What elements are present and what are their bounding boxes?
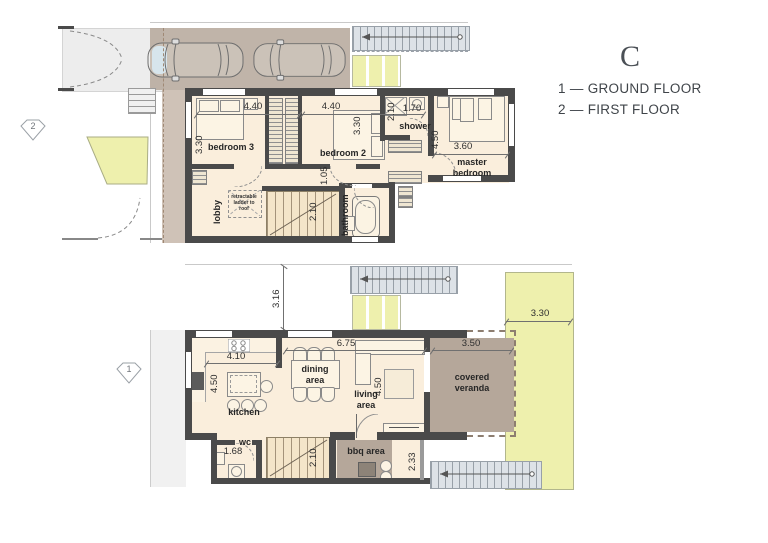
site-boundary-line xyxy=(185,264,572,265)
car-icon xyxy=(252,37,348,83)
stair-direction-arrow xyxy=(352,26,468,49)
room-label-dining: dining area xyxy=(296,364,334,386)
fence-line xyxy=(62,238,98,240)
kitchen-island-top xyxy=(230,375,257,393)
door-arc xyxy=(330,166,356,186)
ground-floor-marker: 1 xyxy=(115,364,143,374)
pillow xyxy=(199,100,219,112)
stair-break-line xyxy=(266,191,339,237)
low-wall xyxy=(420,440,424,480)
dim-wc-width: 1.68 xyxy=(221,446,245,457)
pedestrian-gate-icon xyxy=(97,196,142,240)
wall xyxy=(330,432,355,440)
roof-overhang-line xyxy=(352,51,468,52)
side-path xyxy=(150,330,186,487)
wall xyxy=(262,186,339,191)
wardrobe xyxy=(268,98,283,164)
wall xyxy=(389,182,395,243)
window xyxy=(288,331,332,337)
window xyxy=(448,89,494,95)
dim-side-setback: 3.16 xyxy=(271,285,282,313)
dim-shower-width: 1.70 xyxy=(400,103,424,114)
dim-veranda-width: 3.50 xyxy=(458,338,484,349)
toilet-bowl xyxy=(231,466,242,477)
room-label-bathroom: bathroom xyxy=(340,194,351,236)
dim-kitchen-width: 4.10 xyxy=(224,351,248,362)
room-label-living: living area xyxy=(346,389,386,411)
window xyxy=(352,237,378,242)
dim-dining-width: 6.75 xyxy=(333,338,359,349)
garden-patch xyxy=(85,135,151,187)
wall xyxy=(329,437,336,480)
wall xyxy=(256,440,262,480)
dim-bedroom3-width: 4.40 xyxy=(240,101,266,112)
car-icon xyxy=(146,37,246,83)
dim-gf-stairs-width: 2.10 xyxy=(308,445,319,471)
wall xyxy=(265,164,302,169)
dim-bedroom3-depth: 3.30 xyxy=(194,132,205,158)
tv-icon xyxy=(383,423,425,432)
room-label-master-bedroom: master bedroom xyxy=(450,157,494,179)
wardrobe xyxy=(388,140,422,153)
rug xyxy=(384,369,414,399)
window xyxy=(186,102,191,138)
window xyxy=(509,104,514,146)
room-label-bbq: bbq area xyxy=(344,446,388,457)
floor-plan-sheet: C 1 — GROUND FLOOR 2 — FIRST FLOOR xyxy=(0,0,768,543)
door-arc xyxy=(354,188,374,208)
legend-ground-floor: 1 — GROUND FLOOR xyxy=(558,81,702,96)
planter-strip xyxy=(352,295,401,330)
wall xyxy=(192,164,234,169)
site-boundary-line xyxy=(150,22,468,23)
fence-line xyxy=(140,238,162,240)
sofa xyxy=(355,353,371,385)
door-arc xyxy=(234,166,262,187)
wall xyxy=(211,440,235,445)
veranda-dashed-edge xyxy=(467,330,516,332)
plan-title: C xyxy=(612,40,648,74)
wall xyxy=(424,392,430,432)
pillow xyxy=(478,98,492,120)
legend-first-floor: 2 — FIRST FLOOR xyxy=(558,102,680,117)
ac-unit xyxy=(398,186,413,197)
dim-bedroom2-depth: 3.30 xyxy=(352,112,363,140)
stair-direction-arrow xyxy=(430,461,540,487)
entry-steps xyxy=(128,88,156,114)
dim-ff-stairs-width: 2.10 xyxy=(308,199,319,225)
ac-unit xyxy=(398,197,413,208)
wall xyxy=(185,433,217,440)
room-label-bedroom3: bedroom 3 xyxy=(205,142,257,153)
stool xyxy=(260,380,273,393)
veranda-dashed-edge xyxy=(467,435,516,437)
ladder-note: retractable ladder to roof xyxy=(230,194,258,212)
chair xyxy=(293,387,307,402)
window xyxy=(335,89,377,95)
bbq-grill xyxy=(358,462,376,477)
veranda-dashed-edge xyxy=(514,330,516,437)
pillow xyxy=(220,100,240,112)
dim-master-width: 3.60 xyxy=(450,141,476,152)
room-label-bedroom2: bedroom 2 xyxy=(318,148,368,159)
wall xyxy=(420,432,467,440)
chair xyxy=(321,387,335,402)
wall xyxy=(211,478,430,484)
pillow xyxy=(460,98,474,122)
fridge xyxy=(192,372,204,390)
dim-garden-width: 3.30 xyxy=(527,308,553,319)
room-label-shower: shower xyxy=(396,121,434,132)
stair-break-line xyxy=(266,437,330,478)
nightstand xyxy=(437,96,449,108)
driveway-gate-icon xyxy=(64,28,126,90)
dim-bedroom2-width: 4.40 xyxy=(318,101,344,112)
property-dashed-line xyxy=(163,28,164,243)
chair xyxy=(307,387,321,402)
window xyxy=(186,352,191,388)
closet xyxy=(192,170,207,185)
window xyxy=(196,331,232,337)
wall xyxy=(380,135,410,140)
dim-right-setback: 2.33 xyxy=(407,449,418,475)
planter-strip xyxy=(352,55,401,87)
wall xyxy=(356,164,380,169)
dim-kitchen-depth: 4.50 xyxy=(209,371,220,397)
room-label-veranda: covered veranda xyxy=(448,372,496,394)
room-label-kitchen: kitchen xyxy=(224,407,264,418)
stair-direction-arrow xyxy=(350,266,456,292)
window xyxy=(203,89,245,95)
first-floor-marker: 2 xyxy=(19,121,47,131)
wall xyxy=(298,96,302,166)
dim-master-depth: 4.50 xyxy=(430,127,441,153)
room-label-lobby: lobby xyxy=(212,196,223,228)
dim-hall-width: 1.05 xyxy=(319,166,330,186)
door-arc xyxy=(356,414,378,438)
